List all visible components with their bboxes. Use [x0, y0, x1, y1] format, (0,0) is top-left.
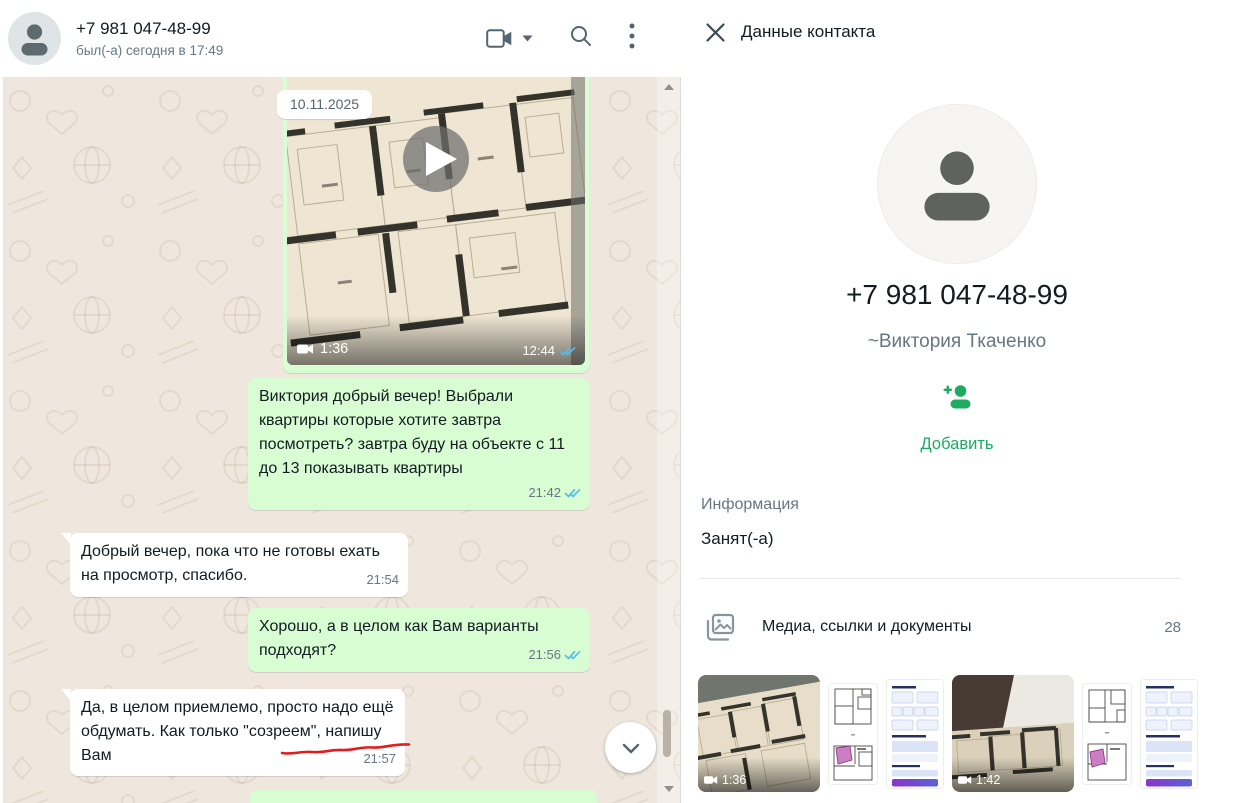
menu-button[interactable] — [629, 22, 635, 55]
contact-profile-avatar[interactable] — [877, 104, 1037, 264]
contact-name: ~Виктория Ткаченко — [681, 331, 1233, 353]
panel-edge — [0, 77, 3, 803]
contact-info-header: Данные контакта — [681, 0, 1233, 64]
double-check-icon — [559, 345, 576, 357]
message-meta: 21:57 — [363, 747, 396, 771]
media-count: 28 — [1121, 619, 1181, 636]
message-time: 21:57 — [363, 747, 396, 771]
close-button[interactable] — [703, 20, 727, 44]
scrollbar-down-arrow[interactable] — [664, 786, 674, 792]
video-thumbnail[interactable]: 1:36 12:44 — [287, 77, 585, 365]
message-time: 21:42 — [528, 481, 561, 505]
info-section-label: Информация — [701, 496, 799, 514]
add-contact-button[interactable]: Добавить — [681, 383, 1233, 454]
video-timestamp: 12:44 — [522, 343, 576, 358]
whatsapp-window: +7 981 047-48-99 был(-а) сегодня в 17:49 — [0, 0, 1233, 803]
media-thumb-document-1[interactable] — [886, 679, 944, 789]
media-thumbnails: 1:36 — [698, 675, 1198, 792]
scrollbar-thumb[interactable] — [663, 710, 671, 757]
video-duration: 1:42 — [958, 773, 1000, 787]
person-icon — [878, 104, 1036, 264]
video-duration: 1:36 — [297, 341, 348, 357]
double-check-icon — [564, 487, 581, 499]
message-meta: 21:54 — [366, 568, 399, 592]
contact-avatar[interactable] — [8, 12, 61, 65]
media-thumb-floorplan-1[interactable] — [828, 683, 878, 785]
message-meta: 21:56 — [528, 643, 581, 667]
camera-glyph-icon — [704, 775, 718, 785]
media-thumb-video-1[interactable]: 1:36 — [698, 675, 820, 792]
message-incoming-2[interactable]: Да, в целом приемлемо, просто надо ещё о… — [70, 689, 405, 776]
chat-header-actions — [486, 22, 635, 55]
scrollbar-up-arrow[interactable] — [664, 84, 674, 90]
chevron-down-icon — [619, 736, 643, 760]
message-outgoing-1[interactable]: Виктория добрый вечер! Выбрали квартиры … — [248, 378, 590, 510]
media-section-header[interactable]: Медиа, ссылки и документы 28 — [681, 608, 1233, 648]
bubble-tail — [61, 533, 71, 545]
message-outgoing-partial[interactable] — [250, 790, 597, 803]
camera-glyph-icon — [297, 343, 314, 355]
chat-title-phone: +7 981 047-48-99 — [76, 19, 486, 39]
double-check-icon — [564, 649, 581, 661]
contact-about: Занят(-а) — [701, 529, 774, 549]
message-text: Да, в целом приемлемо, просто надо ещё о… — [81, 699, 394, 764]
play-button — [403, 126, 469, 192]
message-time: 21:56 — [528, 643, 561, 667]
scrollbar-track[interactable] — [657, 77, 681, 803]
video-camera-icon — [486, 28, 513, 49]
chat-header: +7 981 047-48-99 был(-а) сегодня в 17:49 — [0, 0, 681, 77]
date-chip: 10.11.2025 — [277, 90, 372, 119]
message-text: Добрый вечер, пока что не готовы ехать н… — [81, 543, 380, 584]
camera-glyph-icon — [958, 775, 972, 785]
media-section-label: Медиа, ссылки и документы — [762, 618, 972, 636]
message-meta: 21:42 — [528, 481, 581, 505]
contact-info-panel: Данные контакта +7 981 047-48-99 ~Виктор… — [681, 0, 1233, 803]
floor-plan-video-preview — [287, 77, 585, 365]
video-message-bubble[interactable]: 1:36 12:44 — [283, 77, 589, 373]
video-call-button[interactable] — [486, 28, 533, 49]
search-button[interactable] — [569, 24, 593, 53]
message-text: Виктория добрый вечер! Выбрали квартиры … — [259, 388, 565, 477]
person-plus-icon — [942, 383, 973, 410]
chat-messages-area: 1:36 12:44 10.11.2025 Виктория добрый ве… — [0, 77, 681, 803]
search-icon — [569, 24, 593, 48]
kebab-menu-icon — [629, 22, 635, 50]
chat-panel: +7 981 047-48-99 был(-а) сегодня в 17:49 — [0, 0, 681, 803]
section-divider — [699, 578, 1181, 579]
message-outgoing-2[interactable]: Хорошо, а в целом как Вам варианты подхо… — [248, 608, 590, 672]
panel-title: Данные контакта — [741, 22, 875, 42]
media-thumb-video-2[interactable]: 1:42 — [952, 675, 1074, 792]
chat-header-titles[interactable]: +7 981 047-48-99 был(-а) сегодня в 17:49 — [76, 19, 486, 58]
message-incoming-1[interactable]: Добрый вечер, пока что не готовы ехать н… — [70, 533, 408, 597]
close-icon — [705, 22, 726, 43]
media-thumb-document-2[interactable] — [1140, 679, 1198, 789]
message-time: 21:54 — [366, 568, 399, 592]
add-contact-label: Добавить — [681, 435, 1233, 454]
bubble-tail — [61, 689, 71, 701]
media-thumb-floorplan-2[interactable] — [1082, 683, 1132, 785]
message-text: Хорошо, а в целом как Вам варианты подхо… — [259, 618, 539, 659]
photos-stack-icon — [703, 612, 737, 648]
person-icon — [8, 12, 61, 65]
scroll-to-bottom-button[interactable] — [605, 722, 656, 773]
video-duration: 1:36 — [704, 773, 746, 787]
contact-phone: +7 981 047-48-99 — [681, 279, 1233, 311]
chevron-down-icon — [522, 35, 533, 42]
chat-last-seen: был(-а) сегодня в 17:49 — [76, 43, 486, 58]
